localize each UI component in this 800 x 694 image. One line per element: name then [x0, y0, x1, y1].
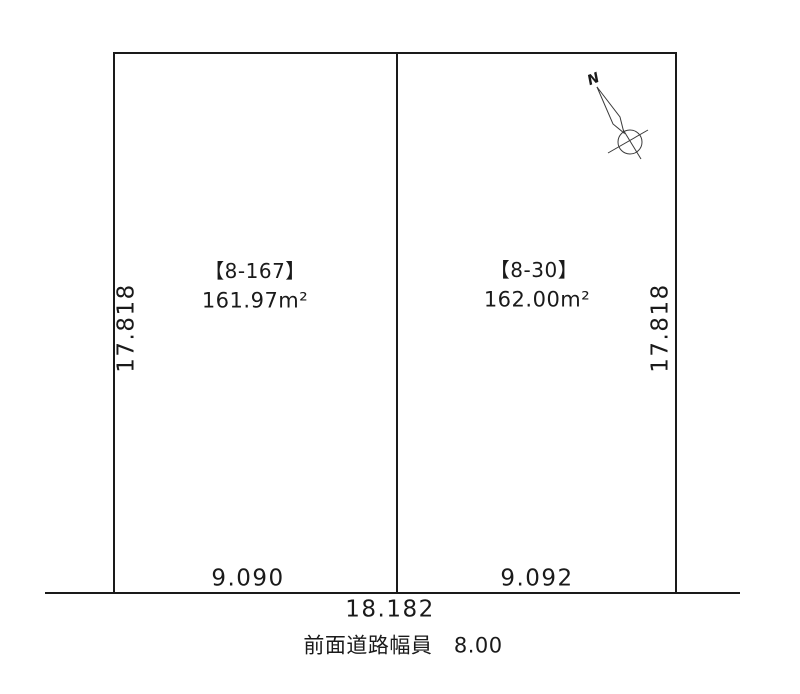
front-road-width-label: 前面道路幅員 8.00: [303, 636, 502, 657]
north-needle-icon: [597, 87, 624, 133]
compass-north-label: N: [585, 70, 602, 89]
site-plan-diagram: 17.818 【8-167】 161.97m² 9.090 17.818 【8-…: [0, 0, 800, 694]
left-depth-dimension: 17.818: [116, 283, 139, 372]
right-parcel-area: 162.00m²: [484, 290, 590, 311]
total-frontage-dimension: 18.182: [345, 599, 434, 622]
left-parcel-id: 【8-167】: [204, 261, 306, 281]
compass-circle: [618, 130, 642, 154]
parcel-divider-line: [396, 52, 398, 594]
left-parcel-area: 161.97m²: [202, 291, 308, 312]
front-road-line: [45, 592, 740, 594]
left-frontage-dimension: 9.090: [211, 568, 284, 591]
right-parcel-id: 【8-30】: [490, 260, 578, 280]
right-frontage-dimension: 9.092: [500, 568, 573, 591]
right-depth-dimension: 17.818: [650, 283, 673, 372]
compass: N: [570, 60, 665, 170]
